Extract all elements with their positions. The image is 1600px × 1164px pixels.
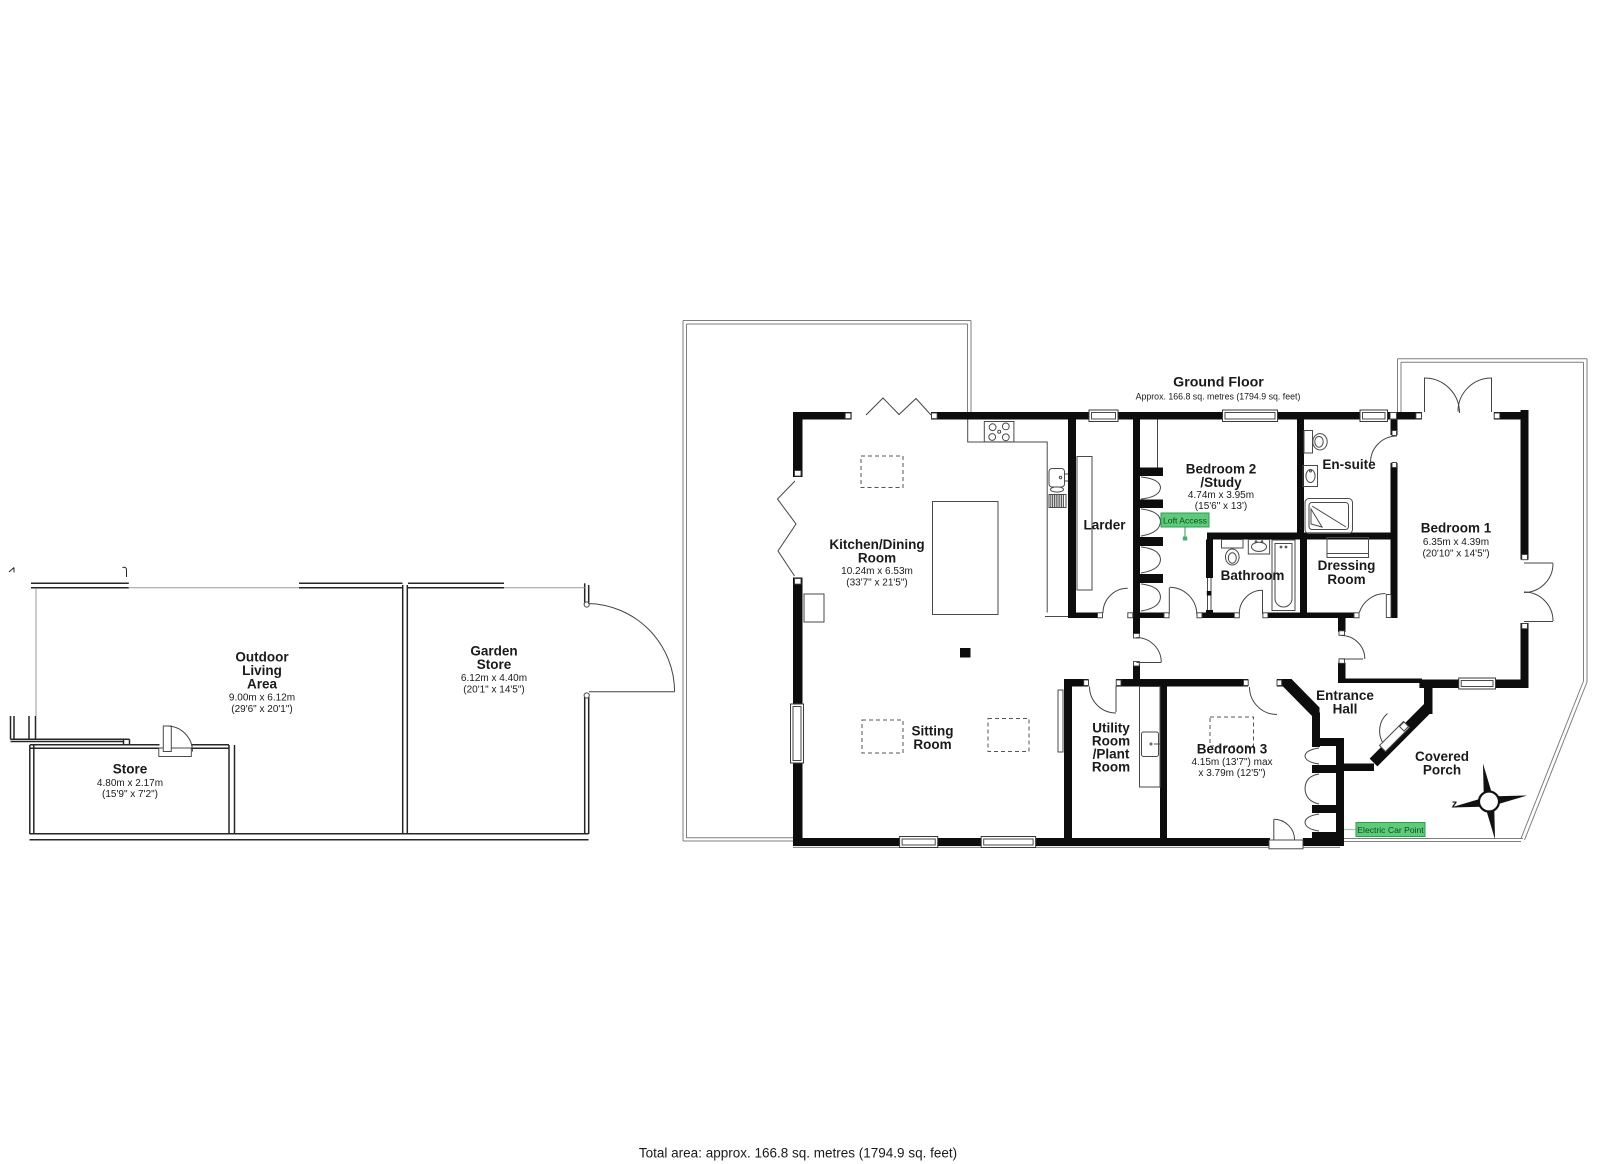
svg-text:(33'7" x 21'5"): (33'7" x 21'5")	[846, 578, 908, 589]
svg-text:4.15m (13'7") max: 4.15m (13'7") max	[1191, 757, 1272, 768]
svg-text:Room: Room	[913, 737, 951, 752]
svg-text:Approx. 166.8 sq. metres (1794: Approx. 166.8 sq. metres (1794.9 sq. fee…	[1136, 392, 1301, 402]
svg-text:(15'9" x 7'2"): (15'9" x 7'2")	[102, 789, 158, 800]
svg-text:Area: Area	[247, 677, 278, 692]
svg-text:4.80m x 2.17m: 4.80m x 2.17m	[97, 778, 163, 789]
svg-text:Porch: Porch	[1423, 763, 1461, 778]
svg-text:6.35m x 4.39m: 6.35m x 4.39m	[1423, 537, 1489, 548]
svg-text:/Study: /Study	[1200, 475, 1242, 490]
svg-text:Room: Room	[1327, 572, 1365, 587]
svg-text:z: z	[1452, 799, 1458, 811]
svg-text:(20'1" x 14'5"): (20'1" x 14'5")	[463, 685, 525, 696]
svg-text:(15'6" x 13'): (15'6" x 13')	[1195, 501, 1247, 512]
svg-text:Total area: approx. 166.8 sq.: Total area: approx. 166.8 sq. metres (17…	[639, 1146, 957, 1161]
svg-text:4.74m x 3.95m: 4.74m x 3.95m	[1188, 490, 1254, 501]
svg-text:Hall: Hall	[1333, 702, 1358, 717]
svg-text:(29'6" x 20'1"): (29'6" x 20'1")	[231, 704, 293, 715]
svg-text:Electric Car Point: Electric Car Point	[1357, 825, 1424, 835]
svg-text:Bathroom: Bathroom	[1221, 568, 1285, 583]
svg-text:Bedroom 1: Bedroom 1	[1421, 521, 1492, 536]
svg-text:10.24m x 6.53m: 10.24m x 6.53m	[841, 566, 913, 577]
svg-text:9.00m x 6.12m: 9.00m x 6.12m	[229, 693, 295, 704]
svg-text:Ground Floor: Ground Floor	[1173, 375, 1264, 391]
svg-text:(20'10" x 14'5"): (20'10" x 14'5")	[1422, 549, 1489, 560]
svg-text:Bedroom 3: Bedroom 3	[1197, 742, 1268, 757]
svg-text:Dressing: Dressing	[1318, 558, 1376, 573]
svg-text:Loft Access: Loft Access	[1163, 516, 1207, 526]
svg-text:Store: Store	[113, 762, 148, 777]
svg-text:6.12m x 4.40m: 6.12m x 4.40m	[461, 673, 527, 684]
svg-text:En-suite: En-suite	[1322, 457, 1376, 472]
svg-text:Store: Store	[477, 657, 512, 672]
svg-text:Larder: Larder	[1083, 518, 1126, 533]
svg-text:x 3.79m (12'5"): x 3.79m (12'5")	[1198, 768, 1265, 779]
svg-text:Room: Room	[1092, 760, 1130, 775]
svg-text:Room: Room	[858, 551, 896, 566]
